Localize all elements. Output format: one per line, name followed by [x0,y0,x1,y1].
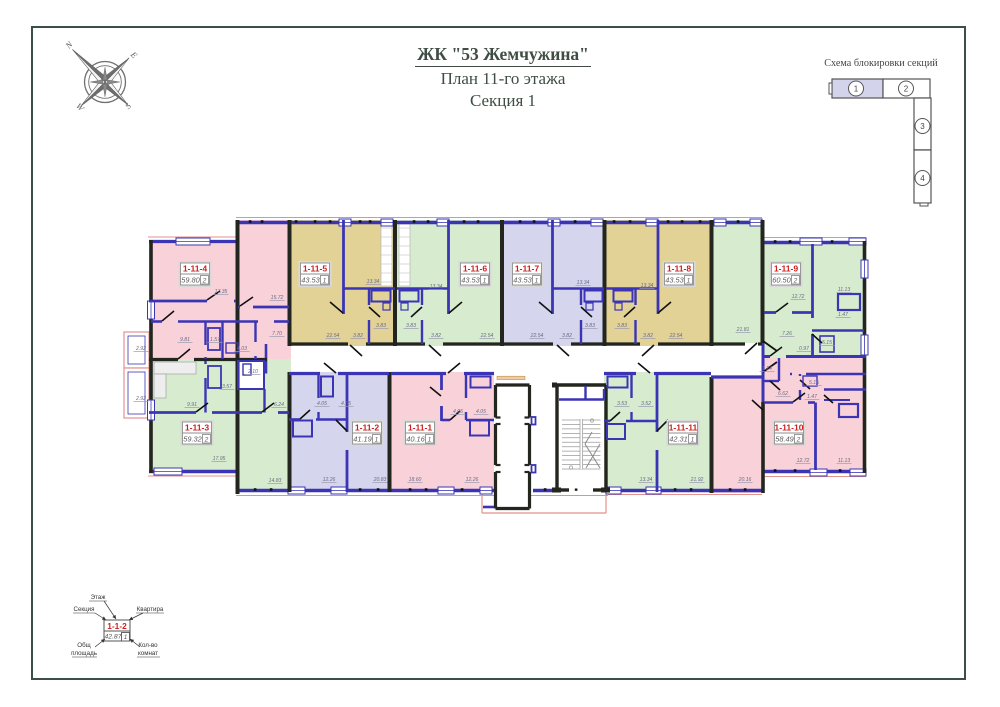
svg-text:Квартира: Квартира [137,606,164,613]
svg-text:59.80: 59.80 [181,276,200,285]
svg-text:21.92: 21.92 [690,477,704,483]
svg-text:1.47: 1.47 [838,312,848,318]
svg-text:14.83: 14.83 [269,478,282,484]
svg-text:1: 1 [535,277,539,284]
svg-text:1-11-3: 1-11-3 [185,423,210,433]
svg-text:11.13: 11.13 [838,287,851,293]
svg-text:Секция: Секция [74,606,95,613]
svg-text:2: 2 [904,85,909,94]
svg-text:4: 4 [920,174,925,183]
svg-text:2: 2 [796,436,801,443]
svg-text:22.54: 22.54 [530,333,544,339]
svg-text:1.24: 1.24 [762,366,772,372]
svg-text:6.24: 6.24 [274,402,284,408]
svg-text:7.70: 7.70 [272,331,282,337]
svg-text:15.72: 15.72 [271,295,284,301]
svg-text:4.05: 4.05 [476,409,486,415]
svg-text:3.82: 3.82 [353,333,363,339]
svg-text:3.83: 3.83 [376,323,386,329]
svg-text:1-11-2: 1-11-2 [355,423,380,433]
svg-text:13.34: 13.34 [577,280,590,286]
svg-text:13.34: 13.34 [430,284,443,290]
svg-text:2: 2 [202,277,207,284]
svg-text:3.52: 3.52 [641,401,651,407]
svg-text:43.53: 43.53 [665,276,684,285]
svg-text:12.72: 12.72 [797,458,810,464]
svg-text:43.53: 43.53 [461,276,480,285]
svg-text:Общ: Общ [77,642,90,649]
svg-text:4.03: 4.03 [237,346,247,352]
svg-text:12.72: 12.72 [792,294,805,300]
svg-text:5.15: 5.15 [822,340,832,346]
svg-text:1: 1 [687,277,691,284]
svg-text:9.91: 9.91 [187,402,197,408]
svg-text:2.10: 2.10 [247,369,258,375]
svg-text:2: 2 [204,436,209,443]
svg-text:1-11-4: 1-11-4 [183,264,208,274]
svg-text:3: 3 [920,122,925,131]
svg-text:3.82: 3.82 [643,333,653,339]
svg-text:2.92: 2.92 [135,346,146,352]
svg-text:4.05: 4.05 [317,401,327,407]
svg-text:13.34: 13.34 [640,477,653,483]
svg-text:Этаж: Этаж [91,594,107,601]
svg-text:3.83: 3.83 [406,323,416,329]
svg-text:Кол-во: Кол-во [138,642,158,649]
svg-text:площадь: площадь [71,650,97,657]
svg-text:13.34: 13.34 [641,283,654,289]
svg-text:17.95: 17.95 [213,456,226,462]
svg-text:18.60: 18.60 [409,477,422,483]
svg-text:58.49: 58.49 [775,435,794,444]
svg-text:40.16: 40.16 [406,435,425,444]
svg-text:1-11-10: 1-11-10 [774,423,803,433]
svg-text:1-11-7: 1-11-7 [515,264,540,274]
svg-text:21.81: 21.81 [736,327,750,333]
svg-text:1: 1 [124,634,128,641]
svg-text:3.53: 3.53 [617,401,627,407]
svg-text:13.34: 13.34 [367,279,380,285]
svg-text:22.54: 22.54 [326,333,340,339]
svg-text:41.19: 41.19 [353,435,372,444]
svg-text:12.26: 12.26 [466,477,479,483]
svg-text:3.82: 3.82 [431,333,441,339]
svg-text:комнат: комнат [138,650,158,657]
svg-text:1: 1 [691,436,695,443]
svg-text:4.05: 4.05 [341,401,351,407]
svg-text:1-11-6: 1-11-6 [463,264,488,274]
svg-text:Схема блокировки секций: Схема блокировки секций [824,58,938,69]
svg-text:2.92: 2.92 [135,396,146,402]
svg-text:3.83: 3.83 [585,323,595,329]
svg-text:1: 1 [854,85,859,94]
svg-text:3.82: 3.82 [562,333,572,339]
svg-text:1: 1 [323,277,327,284]
svg-text:22.54: 22.54 [669,333,683,339]
svg-text:43.53: 43.53 [513,276,532,285]
svg-text:20.16: 20.16 [738,477,752,483]
svg-text:59.32: 59.32 [183,435,202,444]
svg-text:11.13: 11.13 [838,458,851,464]
svg-text:1.57: 1.57 [210,337,220,343]
svg-text:1.47: 1.47 [807,394,817,400]
svg-text:5.15: 5.15 [809,380,819,386]
svg-text:0.97: 0.97 [799,346,809,352]
svg-text:4.05: 4.05 [453,409,463,415]
svg-text:E: E [128,49,140,61]
svg-text:3.57: 3.57 [222,384,232,390]
svg-text:42.31: 42.31 [669,435,688,444]
svg-text:1-11-11: 1-11-11 [669,423,698,433]
svg-text:1-1-2: 1-1-2 [107,621,127,631]
svg-text:1-11-8: 1-11-8 [667,264,692,274]
svg-text:7.26: 7.26 [782,331,792,337]
svg-text:N: N [63,38,76,51]
svg-text:12.26: 12.26 [323,477,336,483]
svg-text:60.50: 60.50 [772,276,791,285]
svg-text:2: 2 [793,277,798,284]
svg-text:17.35: 17.35 [215,289,228,295]
svg-text:9.81: 9.81 [180,337,190,343]
svg-text:1-11-1: 1-11-1 [408,423,433,433]
svg-text:42.87: 42.87 [104,634,121,641]
svg-text:43.53: 43.53 [301,276,320,285]
svg-text:S: S [123,100,134,111]
svg-text:6.62: 6.62 [778,391,788,397]
svg-text:1: 1 [483,277,487,284]
svg-text:20.83: 20.83 [373,477,387,483]
svg-text:3.83: 3.83 [617,323,627,329]
svg-text:22.54: 22.54 [480,333,494,339]
svg-text:1-11-9: 1-11-9 [774,264,799,274]
svg-text:1: 1 [428,436,432,443]
svg-text:1-11-5: 1-11-5 [303,264,328,274]
svg-text:1: 1 [375,436,379,443]
